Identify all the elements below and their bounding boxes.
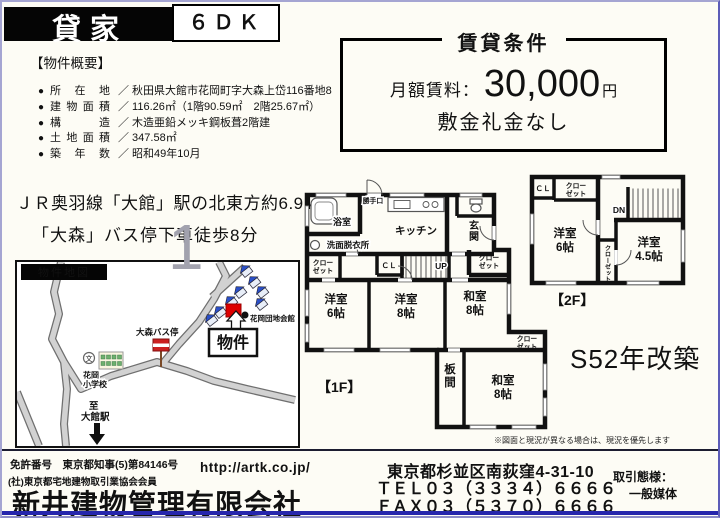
room-size-western8: 8帖: [397, 306, 415, 320]
room-label-japanese8a: 和室: [464, 289, 487, 303]
room-label-entrance-2: 関: [469, 231, 479, 243]
stairs-down-label: DN: [613, 205, 625, 215]
room-label-itanoma-1: 板: [444, 362, 456, 376]
overview-value: 木造亜鉛メッキ鋼板葺2階建: [132, 117, 270, 129]
closet-label: ゼット: [313, 266, 333, 275]
bottom-accent-bar: [2, 511, 720, 515]
overview-value: 昭和49年10月: [132, 148, 200, 160]
separator: ／: [118, 148, 129, 160]
license-number: 免許番号 東京都知事(5)第84146号: [10, 457, 178, 472]
cl-label: ＣＬ: [536, 184, 551, 193]
floor-plans: 浴室 勝手口 キッチン 玄 関 洗面脱衣所 クロー ゼット ＣＬ UP クロー …: [302, 172, 702, 454]
flyer-page: 貸家 ６ＤＫ 賃貸条件 月額賃料： 30,000 円 敷金礼金なし 【物件概要】…: [0, 0, 720, 518]
closet-label: クロー: [517, 334, 538, 343]
overview-label: 建物面積: [50, 100, 110, 115]
closet-label: ゼット: [479, 261, 499, 270]
room-label-backdoor: 勝手口: [363, 196, 384, 205]
room-label-itanoma-2: 間: [444, 376, 456, 389]
room-label-western6: 洋室: [325, 292, 348, 306]
floor1-plan: 浴室 勝手口 キッチン 玄 関 洗面脱衣所 クロー ゼット ＣＬ UP クロー …: [306, 180, 547, 429]
layout-badge: ６ＤＫ: [172, 4, 280, 42]
closet-label: ゼット: [566, 189, 586, 198]
stairs-up-label: UP: [435, 261, 447, 271]
property-type-label: 貸家: [52, 6, 128, 48]
bullet-icon: ●: [38, 149, 44, 160]
door-arc: [616, 250, 631, 265]
bus-stop-label: 大森バス停: [136, 327, 179, 337]
room-label-japanese8b: 和室: [492, 373, 515, 387]
to-station-arrow-icon: [89, 423, 105, 445]
room-size-western6: 6帖: [327, 306, 345, 320]
separator: ／: [118, 132, 129, 144]
room-label-western45: 洋室: [638, 235, 661, 249]
property-callout-label: 物件: [217, 333, 249, 352]
overview-item-building-area: ●建物面積／116.26㎡（1階90.59㎡ 2階25.67㎡）: [38, 100, 332, 116]
separator: ／: [118, 117, 129, 129]
bullet-icon: ●: [38, 86, 44, 97]
community-hall-label: 花岡団地会館: [250, 313, 295, 323]
room-label-kitchen: キッチン: [395, 225, 437, 237]
access-line-bus: 「大森」バス停下車徒歩8分: [32, 221, 258, 246]
room-label-bath: 浴室: [333, 216, 351, 227]
overview-value: 116.26㎡（1階90.59㎡ 2階25.67㎡）: [132, 101, 320, 113]
overview-heading: 【物件概要】: [30, 52, 111, 72]
room-size-western45: 4.5帖: [635, 249, 663, 263]
overview-label: 土地面積: [50, 131, 110, 146]
room-label-western8: 洋室: [395, 292, 418, 306]
stairs-down-icon: [633, 189, 678, 219]
overview-item-structure: ●構造／木造亜鉛メッキ鋼板葺2階建: [38, 116, 332, 132]
overview-item-land-area: ●土地面積／347.58㎡: [38, 131, 332, 147]
separator: ／: [118, 101, 129, 113]
closet-label: クロー: [566, 181, 587, 190]
washbasin-icon: [311, 241, 320, 250]
overview-value: 347.58㎡: [132, 132, 177, 144]
bullet-icon: ●: [38, 118, 44, 129]
rent-row: 月額賃料： 30,000 円: [343, 63, 664, 106]
school-label-1: 花岡: [83, 370, 99, 380]
floor2-label: 【2F】: [550, 292, 594, 308]
cl-label: ＣＬ: [382, 261, 397, 270]
room-label-entrance-1: 玄: [469, 219, 479, 232]
room-size-western6-2f: 6帖: [556, 240, 574, 254]
closet-label-vertical: クローゼット: [604, 244, 611, 282]
overview-label: 築年数: [50, 147, 110, 162]
to-station-label-2: 大館駅: [81, 411, 110, 423]
floor2-plan: ＣＬ クロー ゼット DN 洋室 6帖 クローゼット 洋室 4.5帖 【2F】: [531, 176, 685, 309]
separator: ／: [118, 85, 129, 97]
rent-unit: 円: [602, 80, 617, 101]
overview-item-built-year: ●築年数／昭和49年10月: [38, 147, 332, 163]
room-size-japanese8a: 8帖: [466, 303, 484, 317]
kitchen-counter-icon: [388, 198, 444, 212]
room-label-washroom: 洗面脱衣所: [327, 240, 370, 250]
overview-value: 秋田県大館市花岡町字大森上岱116番地8: [132, 85, 332, 97]
deal-type-label: 取引態様：: [613, 468, 673, 485]
school-label-2: 小学校: [82, 379, 108, 389]
overview-label: 構造: [50, 116, 110, 131]
to-station-label-1: 至: [89, 401, 99, 412]
rent-label: 月額賃料：: [390, 76, 480, 101]
company-url: http://artk.co.jp/: [200, 460, 310, 475]
school-icon: 文: [84, 352, 124, 369]
closet-label: クロー: [313, 258, 334, 267]
location-map: 花岡団地会館 物件 大森バス停 文 花岡 小学校 至: [15, 260, 300, 448]
conditions-title: 賃貸条件: [442, 27, 566, 56]
bullet-icon: ●: [38, 102, 44, 113]
floor1-label: 【1F】: [317, 379, 361, 395]
watermark-numeral: 1: [168, 215, 204, 279]
closet-label: クロー: [479, 253, 500, 262]
rental-conditions-box: 賃貸条件 月額賃料： 30,000 円 敷金礼金なし: [340, 38, 667, 152]
school-mark: 文: [86, 354, 93, 363]
bullet-icon: ●: [38, 133, 44, 144]
overview-item-location: ●所在地／秋田県大館市花岡町字大森上岱116番地8: [38, 84, 332, 100]
toilet-icon: [470, 199, 482, 212]
rent-value: 30,000: [484, 63, 600, 106]
overview-label: 所在地: [50, 84, 110, 99]
overview-list: ●所在地／秋田県大館市花岡町字大森上岱116番地8 ●建物面積／116.26㎡（…: [38, 84, 332, 163]
deposit-note: 敷金礼金なし: [343, 106, 664, 135]
room-label-western6-2f: 洋室: [554, 226, 577, 240]
map-title: 物件地図: [38, 265, 90, 279]
room-size-japanese8b: 8帖: [494, 387, 512, 401]
map-canvas: 花岡団地会館 物件 大森バス停 文 花岡 小学校 至: [17, 262, 298, 446]
deal-type-value: 一般媒体: [629, 485, 677, 502]
closet-label: ゼット: [517, 342, 537, 351]
